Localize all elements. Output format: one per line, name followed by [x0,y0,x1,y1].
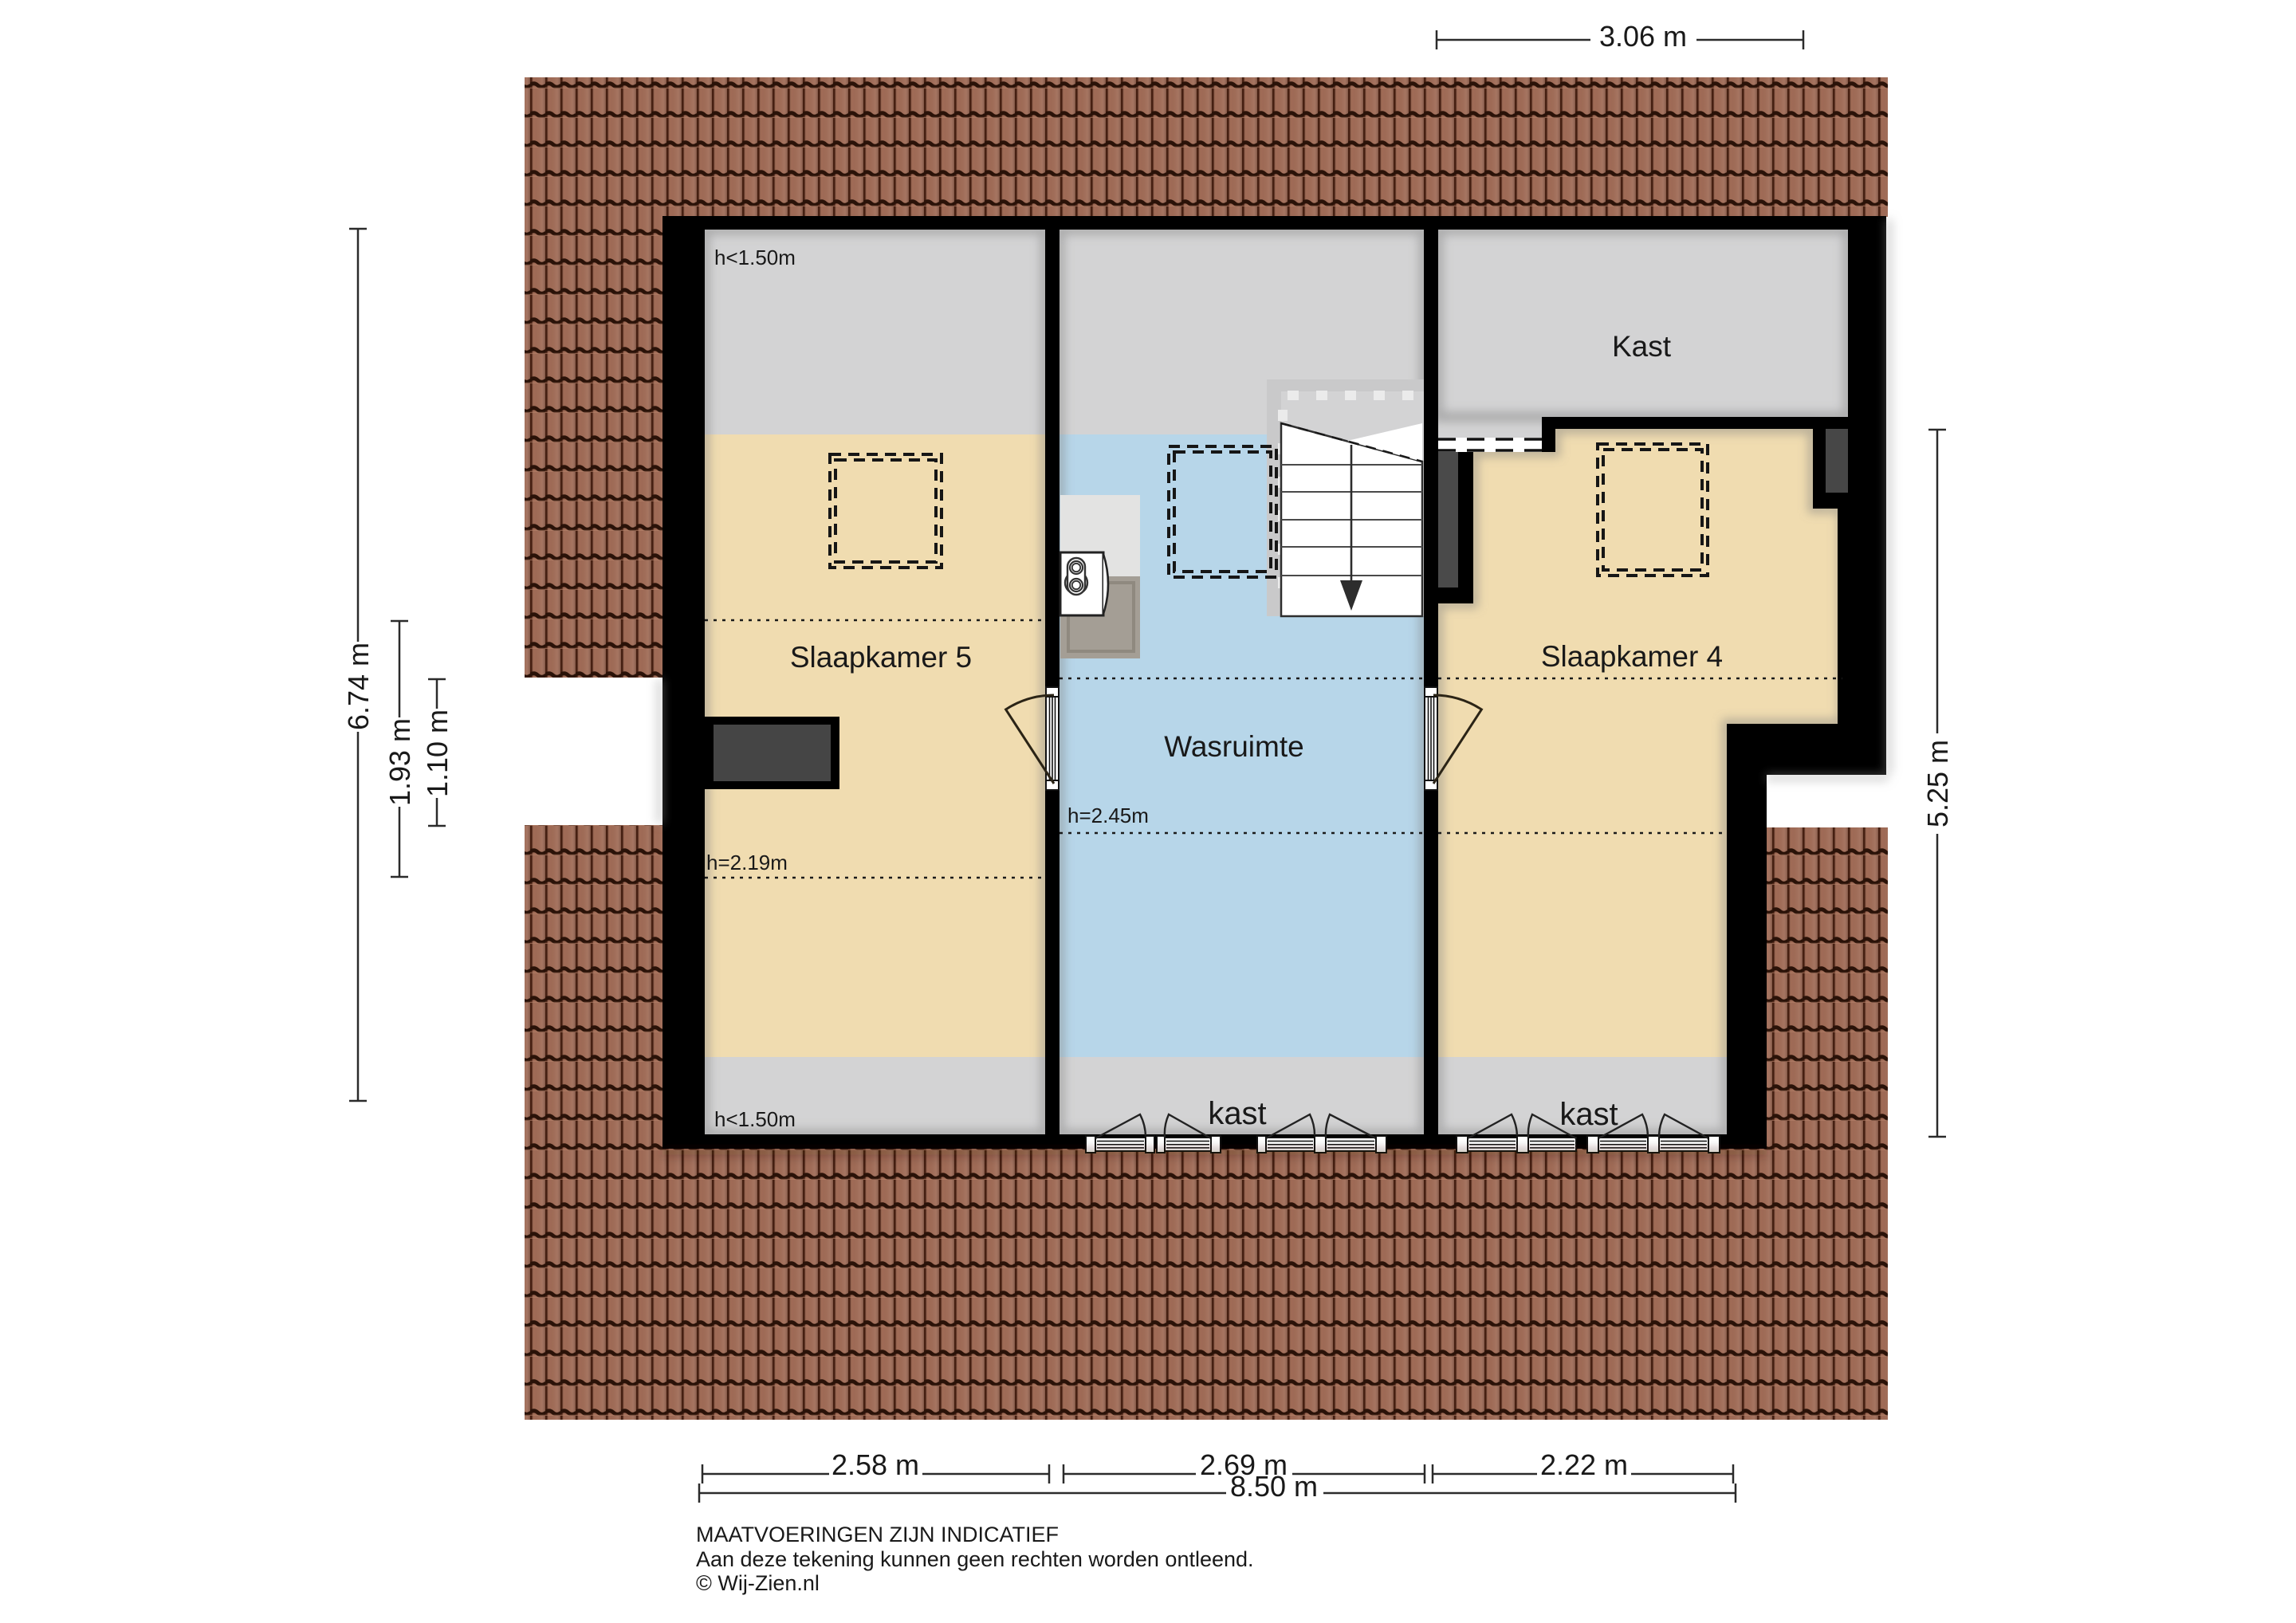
svg-text:2.58 m: 2.58 m [832,1448,919,1481]
svg-text:5.25 m: 5.25 m [1921,740,1954,827]
svg-text:© Wij-Zien.nl: © Wij-Zien.nl [696,1571,820,1595]
svg-text:Aan deze tekening kunnen geen: Aan deze tekening kunnen geen rechten wo… [696,1547,1254,1571]
svg-text:Slaapkamer 4: Slaapkamer 4 [1541,640,1723,673]
svg-text:h<1.50m: h<1.50m [714,246,796,269]
svg-text:h<1.50m: h<1.50m [714,1107,796,1131]
svg-text:3.06 m: 3.06 m [1599,20,1687,53]
svg-text:1.93 m: 1.93 m [383,718,416,806]
svg-text:Wasruimte: Wasruimte [1164,730,1303,763]
svg-text:Slaapkamer 5: Slaapkamer 5 [790,641,972,674]
svg-text:h=2.45m: h=2.45m [1067,804,1149,827]
svg-text:h=2.19m: h=2.19m [706,851,788,874]
svg-text:kast: kast [1559,1097,1618,1132]
svg-text:1.10 m: 1.10 m [421,709,454,797]
svg-text:8.50 m: 8.50 m [1230,1470,1318,1503]
svg-text:Kast: Kast [1612,330,1672,363]
svg-text:6.74 m: 6.74 m [342,643,375,730]
svg-text:kast: kast [1208,1096,1266,1131]
svg-text:2.22 m: 2.22 m [1540,1448,1628,1481]
svg-text:MAATVOERINGEN ZIJN INDICATIEF: MAATVOERINGEN ZIJN INDICATIEF [696,1523,1059,1546]
